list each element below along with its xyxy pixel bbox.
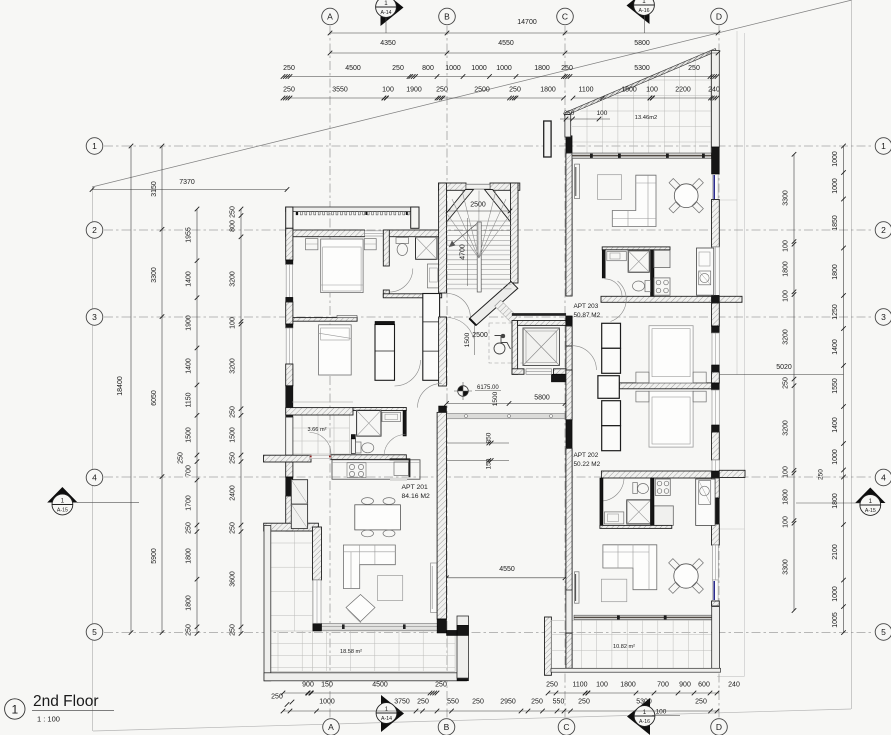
svg-text:1800: 1800 (540, 87, 556, 94)
svg-text:1: 1 (643, 709, 647, 716)
svg-text:1400: 1400 (186, 358, 193, 374)
svg-text:250: 250 (186, 624, 193, 636)
svg-text:250: 250 (283, 87, 295, 94)
svg-text:1005: 1005 (832, 612, 839, 628)
svg-text:250: 250 (531, 699, 543, 706)
svg-text:3600: 3600 (230, 571, 237, 587)
svg-text:1: 1 (869, 498, 873, 505)
svg-text:250: 250 (509, 87, 521, 94)
svg-text:100: 100 (596, 682, 608, 689)
svg-text:1000: 1000 (832, 178, 839, 194)
svg-text:1400: 1400 (832, 417, 839, 433)
svg-text:5900: 5900 (151, 548, 158, 564)
svg-text:2500: 2500 (470, 202, 486, 209)
svg-text:5800: 5800 (634, 40, 650, 47)
svg-text:250: 250 (435, 682, 447, 689)
svg-text:100: 100 (783, 516, 790, 528)
svg-text:250: 250 (818, 469, 825, 480)
svg-text:3: 3 (881, 312, 886, 322)
svg-text:100: 100 (382, 87, 394, 94)
svg-text:250: 250 (564, 110, 575, 117)
svg-text:10.82 m²: 10.82 m² (613, 644, 635, 650)
svg-text:1: 1 (92, 141, 97, 151)
svg-text:1: 1 (11, 703, 18, 717)
svg-text:4350: 4350 (380, 40, 396, 47)
svg-text:14700: 14700 (517, 19, 537, 26)
svg-text:50.22 M2: 50.22 M2 (574, 461, 601, 468)
svg-text:800: 800 (422, 65, 434, 72)
svg-text:550: 550 (553, 699, 565, 706)
svg-text:1550: 1550 (832, 378, 839, 394)
svg-text:2950: 2950 (500, 699, 516, 706)
svg-text:800: 800 (230, 220, 237, 232)
svg-text:5020: 5020 (776, 364, 792, 371)
svg-text:1000: 1000 (832, 449, 839, 465)
svg-text:250: 250 (392, 65, 404, 72)
svg-text:4: 4 (92, 473, 97, 483)
svg-text:1000: 1000 (319, 699, 335, 706)
svg-text:6050: 6050 (151, 390, 158, 406)
svg-text:2100: 2100 (832, 544, 839, 560)
svg-text:100: 100 (230, 317, 237, 329)
svg-text:1800: 1800 (832, 493, 839, 509)
svg-text:600: 600 (698, 682, 710, 689)
svg-text:250: 250 (186, 522, 193, 534)
svg-text:5300: 5300 (634, 65, 650, 72)
svg-text:1800: 1800 (783, 489, 790, 505)
svg-text:1000: 1000 (832, 586, 839, 602)
svg-text:3.66 m²: 3.66 m² (308, 427, 327, 433)
svg-text:3750: 3750 (394, 699, 410, 706)
svg-text:APT 202: APT 202 (574, 452, 599, 459)
svg-text:B: B (444, 722, 450, 732)
svg-text:18.58 m²: 18.58 m² (340, 649, 362, 655)
svg-text:1500: 1500 (186, 427, 193, 443)
svg-text:D: D (716, 12, 722, 22)
svg-text:D: D (716, 722, 722, 732)
svg-text:50.87 M2: 50.87 M2 (574, 312, 601, 319)
svg-text:3150: 3150 (151, 181, 158, 197)
svg-text:240: 240 (728, 682, 740, 689)
svg-text:4550: 4550 (498, 40, 514, 47)
svg-text:6175.00: 6175.00 (477, 385, 499, 391)
svg-text:3300: 3300 (151, 267, 158, 283)
svg-text:250: 250 (436, 87, 448, 94)
svg-text:1: 1 (881, 141, 886, 151)
svg-text:1250: 1250 (832, 304, 839, 320)
svg-text:100: 100 (783, 466, 790, 478)
svg-text:240: 240 (708, 87, 720, 94)
svg-text:7370: 7370 (179, 179, 195, 186)
svg-text:1000: 1000 (445, 65, 461, 72)
svg-text:1900: 1900 (406, 87, 422, 94)
svg-text:1850: 1850 (832, 215, 839, 231)
svg-text:250: 250 (688, 65, 700, 72)
svg-text:13.46m2: 13.46m2 (635, 115, 658, 121)
svg-text:4500: 4500 (345, 65, 361, 72)
svg-text:250: 250 (695, 699, 707, 706)
svg-text:1000: 1000 (471, 65, 487, 72)
svg-text:1100: 1100 (578, 87, 593, 94)
svg-text:5800: 5800 (534, 395, 550, 402)
svg-text:150: 150 (321, 682, 333, 689)
svg-text:APT 201: APT 201 (402, 484, 429, 491)
svg-text:250: 250 (472, 699, 484, 706)
svg-text:250: 250 (271, 694, 283, 701)
svg-text:3300: 3300 (783, 559, 790, 575)
svg-text:850: 850 (486, 432, 493, 443)
svg-text:1150: 1150 (186, 392, 193, 407)
svg-text:250: 250 (230, 406, 237, 418)
svg-text:5: 5 (92, 627, 97, 637)
svg-text:100: 100 (597, 110, 608, 117)
svg-text:4500: 4500 (372, 682, 388, 689)
svg-text:250: 250 (417, 699, 429, 706)
svg-text:250: 250 (546, 682, 558, 689)
svg-text:A-15: A-15 (865, 508, 876, 514)
svg-text:2500: 2500 (474, 87, 490, 94)
svg-text:1400: 1400 (186, 271, 193, 287)
svg-text:250: 250 (578, 699, 590, 706)
svg-text:3200: 3200 (230, 358, 237, 374)
svg-text:2nd Floor: 2nd Floor (33, 693, 98, 710)
svg-text:1800: 1800 (620, 682, 636, 689)
svg-text:100: 100 (646, 87, 658, 94)
svg-text:A-16: A-16 (639, 719, 650, 725)
svg-text:A: A (327, 12, 333, 22)
svg-text:1: 1 (384, 0, 388, 7)
svg-text:100: 100 (656, 709, 667, 716)
svg-text:1 : 100: 1 : 100 (37, 715, 60, 724)
svg-text:APT 203: APT 203 (574, 303, 599, 310)
svg-text:3200: 3200 (230, 271, 237, 287)
svg-text:250: 250 (230, 624, 237, 636)
svg-text:3200: 3200 (783, 420, 790, 436)
svg-text:A-14: A-14 (381, 10, 392, 16)
svg-text:3200: 3200 (783, 329, 790, 345)
svg-text:250: 250 (230, 452, 237, 464)
svg-text:4700: 4700 (460, 244, 467, 260)
svg-text:1500: 1500 (492, 391, 499, 406)
svg-text:2400: 2400 (230, 485, 237, 501)
svg-text:1500: 1500 (230, 427, 237, 443)
svg-text:4550: 4550 (499, 566, 515, 573)
svg-text:C: C (563, 722, 569, 732)
svg-text:1: 1 (385, 706, 389, 713)
svg-text:1800: 1800 (783, 261, 790, 277)
svg-text:A-15: A-15 (57, 508, 68, 514)
svg-text:5300: 5300 (636, 699, 652, 706)
svg-text:1100: 1100 (572, 682, 587, 689)
svg-text:5: 5 (881, 627, 886, 637)
svg-text:250: 250 (783, 377, 790, 389)
svg-text:700: 700 (186, 465, 193, 477)
svg-text:1700: 1700 (186, 495, 193, 511)
svg-text:150: 150 (486, 458, 493, 469)
svg-text:1800: 1800 (621, 87, 637, 94)
svg-text:2: 2 (92, 225, 97, 235)
svg-text:100: 100 (783, 240, 790, 252)
svg-text:1800: 1800 (186, 595, 193, 611)
svg-text:2200: 2200 (675, 87, 691, 94)
svg-text:84.16 M2: 84.16 M2 (402, 493, 431, 500)
svg-text:1800: 1800 (832, 264, 839, 280)
svg-text:18400: 18400 (117, 376, 124, 396)
svg-text:250: 250 (230, 522, 237, 534)
svg-text:900: 900 (302, 682, 314, 689)
svg-text:A-14: A-14 (381, 716, 392, 722)
svg-text:1900: 1900 (186, 315, 193, 331)
svg-text:1500: 1500 (464, 332, 471, 347)
svg-text:250: 250 (178, 452, 185, 464)
svg-text:3550: 3550 (332, 87, 348, 94)
svg-text:250: 250 (561, 65, 573, 72)
svg-text:A: A (328, 722, 334, 732)
svg-text:1000: 1000 (832, 151, 839, 167)
svg-text:250: 250 (283, 65, 295, 72)
svg-text:1800: 1800 (186, 548, 193, 564)
svg-text:550: 550 (447, 699, 459, 706)
svg-text:1000: 1000 (496, 65, 512, 72)
svg-text:3300: 3300 (783, 190, 790, 206)
svg-text:B: B (444, 12, 450, 22)
svg-text:900: 900 (679, 682, 691, 689)
svg-text:3: 3 (92, 312, 97, 322)
svg-text:1400: 1400 (832, 339, 839, 355)
svg-text:700: 700 (657, 682, 669, 689)
svg-text:1: 1 (61, 498, 65, 505)
svg-text:1: 1 (642, 0, 646, 5)
svg-text:4: 4 (881, 473, 886, 483)
svg-text:1955: 1955 (186, 227, 193, 243)
svg-text:A-16: A-16 (639, 8, 650, 14)
svg-text:250: 250 (230, 206, 237, 218)
svg-text:C: C (562, 12, 568, 22)
svg-text:1800: 1800 (534, 65, 550, 72)
svg-text:2: 2 (881, 225, 886, 235)
svg-text:100: 100 (783, 290, 790, 302)
